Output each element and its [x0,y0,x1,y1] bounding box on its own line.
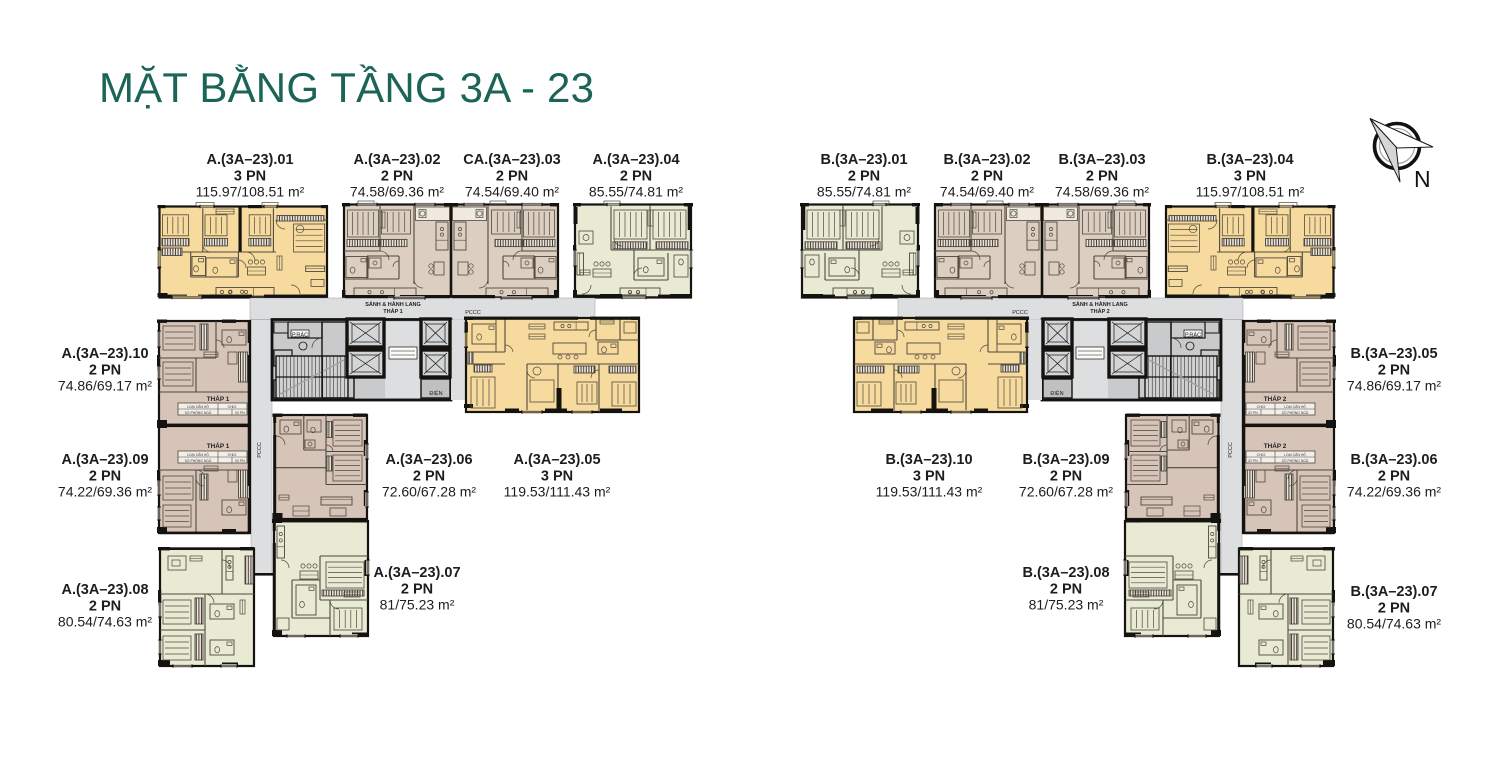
svg-text:115.97/108.51 m²: 115.97/108.51 m² [196,184,305,200]
svg-text:LOẠI CĂN HỘ: LOẠI CĂN HỘ [187,404,209,409]
svg-text:3 PN: 3 PN [913,469,945,485]
svg-text:CH02: CH02 [228,453,237,457]
svg-text:SẢNH & HÀNH LANG: SẢNH & HÀNH LANG [1072,301,1128,308]
svg-text:SỐ PHÒNG NGỦ: SỐ PHÒNG NGỦ [1282,410,1309,415]
svg-text:SỐ PHÒNG NGỦ: SỐ PHÒNG NGỦ [185,410,212,415]
svg-text:02 PN: 02 PN [235,411,245,415]
svg-text:A.(3A–23).02: A.(3A–23).02 [353,152,440,168]
svg-text:3 PN: 3 PN [234,169,266,185]
svg-text:B.(3A–23).05: B.(3A–23).05 [1350,346,1437,362]
svg-text:B.(3A–23).02: B.(3A–23).02 [943,152,1030,168]
svg-text:74.86/69.17 m²: 74.86/69.17 m² [58,378,153,394]
svg-text:PCCC: PCCC [1012,310,1028,316]
svg-text:2 PN: 2 PN [496,169,528,185]
svg-text:LOẠI CĂN HỘ: LOẠI CĂN HỘ [1284,404,1306,409]
svg-text:2 PN: 2 PN [1050,582,1082,598]
svg-text:2 PN: 2 PN [1378,363,1410,379]
svg-text:2 PN: 2 PN [971,169,1003,185]
svg-text:P.RÁC: P.RÁC [292,332,308,339]
svg-text:A.(3A–23).06: A.(3A–23).06 [385,452,472,468]
svg-text:3 PN: 3 PN [1234,169,1266,185]
svg-text:74.54/69.40 m²: 74.54/69.40 m² [940,184,1035,200]
svg-text:02 PN: 02 PN [1248,459,1258,463]
svg-text:74.86/69.17 m²: 74.86/69.17 m² [1347,378,1442,394]
svg-text:80.54/74.63 m²: 80.54/74.63 m² [1347,616,1442,632]
svg-text:119.53/111.43 m²: 119.53/111.43 m² [876,484,983,500]
svg-text:2 PN: 2 PN [1086,169,1118,185]
svg-text:THÁP 1: THÁP 1 [383,308,402,315]
svg-text:2 PN: 2 PN [381,169,413,185]
svg-text:74.22/69.36 m²: 74.22/69.36 m² [1347,484,1442,500]
svg-text:THÁP 2: THÁP 2 [1264,394,1287,403]
svg-text:A.(3A–23).07: A.(3A–23).07 [373,565,460,581]
svg-text:CA.(3A–23).03: CA.(3A–23).03 [463,152,561,168]
svg-text:ĐIỆN: ĐIỆN [429,389,442,397]
svg-text:B.(3A–23).06: B.(3A–23).06 [1350,452,1437,468]
svg-text:85.55/74.81 m²: 85.55/74.81 m² [589,184,684,200]
svg-text:PCCC: PCCC [257,442,263,458]
svg-text:N: N [1414,166,1431,192]
svg-text:2 PN: 2 PN [89,363,121,379]
svg-text:85.55/74.81 m²: 85.55/74.81 m² [817,184,912,200]
svg-text:A.(3A–23).04: A.(3A–23).04 [592,152,679,168]
svg-text:2 PN: 2 PN [89,469,121,485]
svg-text:02 PN: 02 PN [235,459,245,463]
svg-text:PCCC: PCCC [465,310,481,316]
svg-text:A.(3A–23).09: A.(3A–23).09 [61,452,148,468]
svg-text:74.58/69.36 m²: 74.58/69.36 m² [350,184,445,200]
svg-text:72.60/67.28 m²: 72.60/67.28 m² [382,484,477,500]
svg-text:74.22/69.36 m²: 74.22/69.36 m² [58,484,153,500]
svg-text:CH02: CH02 [1257,405,1266,409]
svg-text:B.(3A–23).09: B.(3A–23).09 [1022,452,1109,468]
svg-text:A.(3A–23).05: A.(3A–23).05 [513,452,600,468]
svg-text:80.54/74.63 m²: 80.54/74.63 m² [58,614,153,630]
svg-text:SẢNH & HÀNH LANG: SẢNH & HÀNH LANG [365,301,421,308]
svg-text:THÁP 1: THÁP 1 [207,441,230,450]
svg-text:CH02: CH02 [228,405,237,409]
svg-text:2 PN: 2 PN [620,169,652,185]
svg-text:2 PN: 2 PN [1050,469,1082,485]
svg-text:2 PN: 2 PN [1378,469,1410,485]
svg-text:THÁP 2: THÁP 2 [1090,308,1109,315]
svg-text:LOẠI CĂN HỘ: LOẠI CĂN HỘ [1284,452,1306,457]
svg-text:CH02: CH02 [1257,453,1266,457]
svg-text:B.(3A–23).03: B.(3A–23).03 [1058,152,1145,168]
svg-text:B.(3A–23).01: B.(3A–23).01 [820,152,907,168]
svg-text:3 PN: 3 PN [541,469,573,485]
svg-text:A.(3A–23).10: A.(3A–23).10 [61,346,148,362]
svg-text:MẶT BẰNG TẦNG 3A - 23: MẶT BẰNG TẦNG 3A - 23 [99,64,594,111]
svg-text:119.53/111.43 m²: 119.53/111.43 m² [504,484,611,500]
svg-text:THÁP 2: THÁP 2 [1264,441,1287,450]
svg-text:B.(3A–23).08: B.(3A–23).08 [1022,565,1109,581]
svg-text:72.60/67.28 m²: 72.60/67.28 m² [1019,484,1114,500]
svg-text:81/75.23 m²: 81/75.23 m² [1029,597,1104,613]
svg-text:ĐIỆN: ĐIỆN [1050,389,1063,397]
svg-text:A.(3A–23).01: A.(3A–23).01 [206,152,293,168]
svg-text:2 PN: 2 PN [848,169,880,185]
svg-text:B.(3A–23).07: B.(3A–23).07 [1350,584,1437,600]
svg-text:2 PN: 2 PN [89,599,121,615]
svg-text:B.(3A–23).04: B.(3A–23).04 [1206,152,1293,168]
svg-text:P.RÁC: P.RÁC [1185,332,1201,339]
svg-text:74.54/69.40 m²: 74.54/69.40 m² [465,184,560,200]
svg-text:2 PN: 2 PN [413,469,445,485]
svg-text:THÁP 1: THÁP 1 [207,394,230,403]
svg-text:A.(3A–23).08: A.(3A–23).08 [61,582,148,598]
svg-text:115.97/108.51 m²: 115.97/108.51 m² [1196,184,1305,200]
svg-text:02 PN: 02 PN [1248,411,1258,415]
svg-text:SỐ PHÒNG NGỦ: SỐ PHÒNG NGỦ [185,458,212,463]
svg-text:81/75.23 m²: 81/75.23 m² [380,597,455,613]
svg-text:SỐ PHÒNG NGỦ: SỐ PHÒNG NGỦ [1282,458,1309,463]
svg-text:74.58/69.36 m²: 74.58/69.36 m² [1055,184,1150,200]
svg-text:PCCC: PCCC [1228,442,1234,458]
svg-text:LOẠI CĂN HỘ: LOẠI CĂN HỘ [187,452,209,457]
svg-text:2 PN: 2 PN [1378,601,1410,617]
svg-text:2 PN: 2 PN [401,582,433,598]
svg-text:B.(3A–23).10: B.(3A–23).10 [885,452,972,468]
